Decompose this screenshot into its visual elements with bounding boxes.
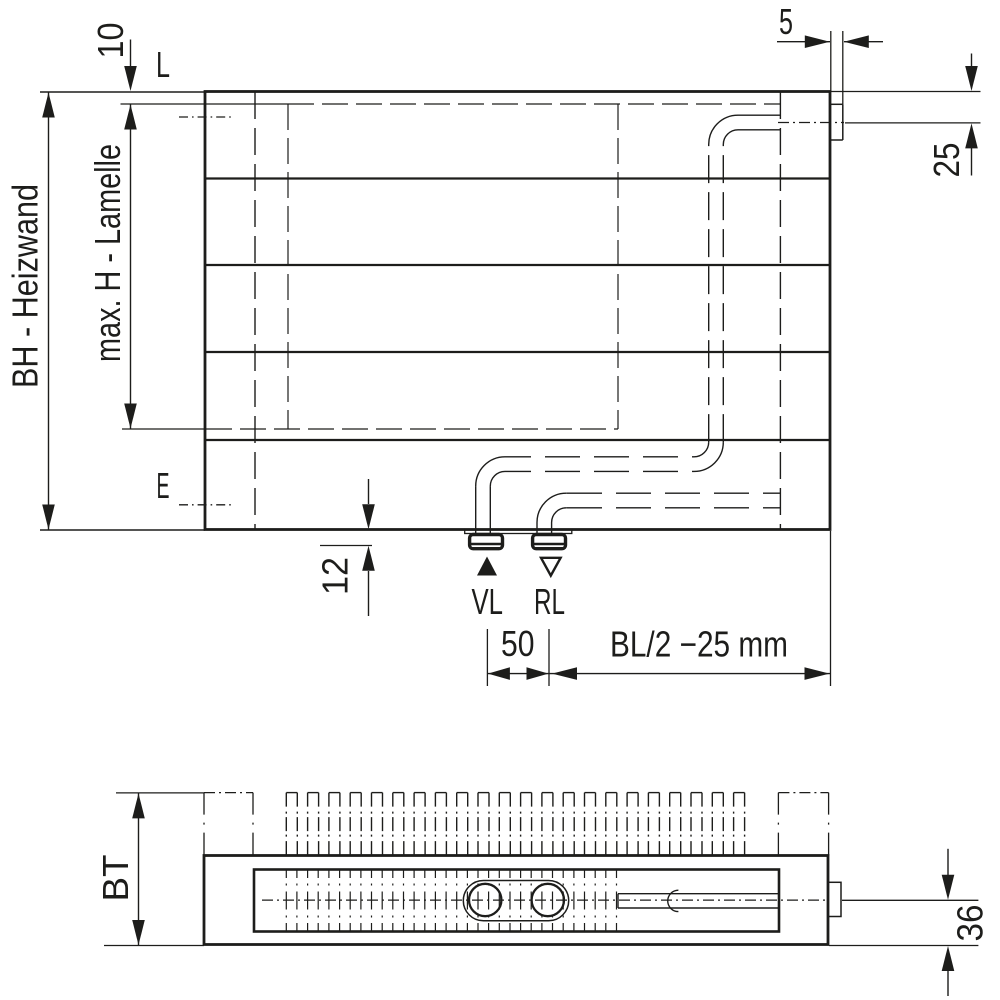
svg-text:12: 12 <box>315 557 356 595</box>
svg-text:L: L <box>156 44 170 85</box>
svg-text:10: 10 <box>90 23 131 59</box>
svg-text:max. H - Lamelle: max. H - Lamelle <box>87 144 128 362</box>
svg-text:RL: RL <box>534 581 565 622</box>
svg-text:BT: BT <box>95 855 136 902</box>
svg-text:25: 25 <box>926 143 967 178</box>
svg-text:50: 50 <box>501 623 535 664</box>
svg-text:VL: VL <box>472 581 504 622</box>
svg-text:E: E <box>157 465 170 506</box>
svg-text:5: 5 <box>779 1 793 42</box>
svg-text:36: 36 <box>950 905 991 942</box>
svg-text:BH - Heizwand: BH - Heizwand <box>5 184 46 388</box>
svg-text:BL/2 −25 mm: BL/2 −25 mm <box>610 624 788 665</box>
